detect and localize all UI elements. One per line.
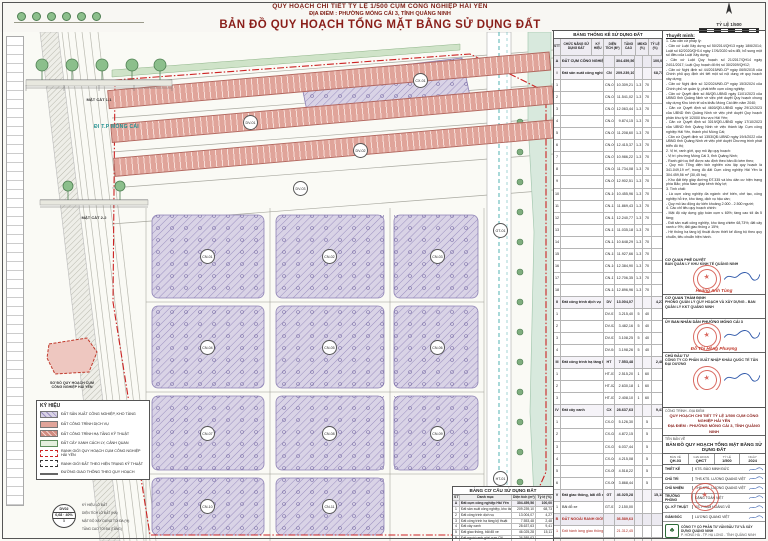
legend-item-label: ĐẤT CÔNG TRÌNH HẠ TẦNG KỸ THUẬT <box>61 432 129 436</box>
diagram-label-floors: TẦNG CAO TỐI ĐA (TẦNG) <box>82 527 122 531</box>
approval-block: CƠ QUAN PHÊ DUYỆT BAN QUẢN LÝ KHU KINH T… <box>663 257 765 295</box>
title-block: CÔNG TRÌNH - ĐỊA ĐIỂM QUY HOẠCH CHI TIẾT… <box>663 407 766 539</box>
table-row: 4 CX-04 4.215,08 5 <box>554 454 662 466</box>
legend-swatch <box>40 430 58 437</box>
drawing-sheet: QUY HOẠCH CHI TIẾT TỶ LỆ 1/500 CỤM CÔNG … <box>0 0 768 541</box>
note-line: - Căn cứ Quyết định số 3019/QĐ-UBND ngày… <box>666 120 762 134</box>
meta-value: 1/500 <box>715 459 740 463</box>
lot-code-circle: GT-01 <box>493 223 508 238</box>
table-row: 3 HT-03 2.408,10 1 60 <box>554 393 662 405</box>
lot-code-circle: CN-07 <box>200 426 215 441</box>
note-line: - Mật độ xây dựng gộp toàn cụm ≤ 60%; tầ… <box>666 211 762 221</box>
table-row: 2 CN-02 11.541,02 1-3 70 <box>554 92 662 104</box>
lot-code-circle: CN-01 <box>200 249 215 264</box>
meta-cell: BẢN VẼ QH-03 <box>663 454 689 464</box>
approval-blocks: CƠ QUAN PHÊ DUYỆT BAN QUẢN LÝ KHU KINH T… <box>663 257 766 407</box>
legend-item: ĐẤT CÂY XANH CÁCH LY, CẢNH QUAN <box>40 440 146 447</box>
personnel-list: THIẾT KẾ KTS. ĐÀO MINH ĐỨC CHỦ TRÌ THS.K… <box>663 465 765 523</box>
legend-swatch <box>40 460 58 467</box>
signature-icon <box>748 475 764 482</box>
table-row: 2 HT-02 2.630,18 1 60 <box>554 381 662 393</box>
approval-block: CHỦ ĐẦU TƯ CÔNG TY CỔ PHẦN XUẤT NHẬP KHẨ… <box>663 353 765 390</box>
table-row: 15 CN-15 11.927,66 1-3 70 <box>554 249 662 261</box>
location-inset: SƠ ĐỒ QUY HOẠCH CỤM CÔNG NGHIỆP HẢI YÊN <box>42 336 102 394</box>
project-location: ĐỊA ĐIỂM : PHƯỜNG MÓNG CÁI 3, TỈNH QUẢNG… <box>665 423 763 433</box>
meta-cell: NGÀY 2024 <box>740 454 765 464</box>
personnel-row: GIÁM ĐỐC LƯƠNG QUANG VIỆT <box>663 513 765 523</box>
note-line: - Hệ thống hạ tầng kỹ thuật được thiết k… <box>666 230 762 240</box>
table-row: V Đất giao thông, bãi đỗ xe GT 46.025,28… <box>554 490 662 502</box>
personnel-name: KTS. ĐÀO MINH ĐỨC <box>693 467 748 471</box>
project-section: CÔNG TRÌNH - ĐỊA ĐIỂM QUY HOẠCH CHI TIẾT… <box>663 408 765 436</box>
personnel-row: CHỦ TRÌ THS.KTS. LƯƠNG QUANG VIỆT <box>663 474 765 484</box>
lot-code-circle: CN-02 <box>322 249 337 264</box>
table-row: B ĐẤT NGOÀI RANH GIỚI CỤM CÔNG NGHIỆP 36… <box>554 514 662 526</box>
design-company: ♣ CÔNG TY CỔ PHẦN TƯ VẤN ĐẦU TƯ VÀ XÂY D… <box>663 522 765 539</box>
diagram-label-density: MẬT ĐỘ XÂY DỰNG TỐI ĐA (%) <box>82 519 129 523</box>
summary-table-title: BẢNG CƠ CẤU SỬ DỤNG ĐẤT <box>453 487 553 495</box>
legend-swatch <box>40 473 58 475</box>
lot-code-circle: CN-09 <box>430 426 445 441</box>
road-cross-section-2: MẶT CẮT 2-2 <box>38 168 150 220</box>
header-cell: KÝ HIỆU <box>592 39 604 55</box>
table-row: 7 CN-07 10.986,22 1-3 70 <box>554 152 662 164</box>
legend-title: KÝ HIỆU <box>40 403 146 409</box>
table-row: 6 CX-06 3.868,44 5 <box>554 478 662 490</box>
header-cell: TỶ LỆ (%) <box>649 39 662 55</box>
table-row: 1 CN-01 10.309,21 1-3 70 <box>554 80 662 92</box>
cross-section-2-drawing <box>38 168 150 210</box>
legend-swatch <box>40 450 58 457</box>
lot-code-circle: CN-04 <box>200 340 215 355</box>
legend-item: ĐẤT CÔNG TRÌNH DỊCH VỤ <box>40 421 146 428</box>
legend: KÝ HIỆU ĐẤT SẢN XUẤT CÔNG NGHIỆP, KHO TÀ… <box>36 400 150 480</box>
statistics-table-header: STTCHỨC NĂNG SỬ DỤNG ĐẤTKÝ HIỆUDIỆN TÍCH… <box>554 39 662 56</box>
title-line-2: ĐỊA ĐIỂM : PHƯỜNG MÓNG CÁI 3, TỈNH QUẢNG… <box>170 11 590 17</box>
table-row: 4 CN-04 9.874,15 1-3 70 <box>554 116 662 128</box>
note-line: - Căn cứ Nghị định số 32/2024/NĐ-CP ngày… <box>666 82 762 92</box>
north-arrow-block: TỶ LỆ 1/500 <box>694 2 764 33</box>
road-cross-section-1: MẶT CẮT 1-1 <box>24 40 174 102</box>
note-line: - Quy mô: Tổng diện tích nghiên cứu lập … <box>666 163 762 177</box>
meta-value: QHCT <box>689 459 714 463</box>
meta-value: QH-03 <box>663 459 688 463</box>
note-line: - Khu đất tiếp giáp đường ĐT.335 và khu … <box>666 178 762 188</box>
diagram-label-code: KÝ HIỆU LÔ ĐẤT <box>82 503 107 507</box>
lot-code-circle: CX-01 <box>413 73 428 88</box>
road-label: ĐI T.P MÓNG CÁI <box>94 124 139 130</box>
legend-item-label: ĐẤT CÔNG TRÌNH DỊCH VỤ <box>61 422 109 426</box>
drawing-name-label: TÊN BẢN VẼ <box>665 437 763 441</box>
section-1-caption: MẶT CẮT 1-1 <box>24 97 174 102</box>
legend-item: RANH GIỚI QUY HOẠCH CỤM CÔNG NGHIỆP HẢI … <box>40 449 146 457</box>
header-cell: TẦNG CAO <box>622 39 636 55</box>
table-row: 4 DV-04 3.198,26 5 40 <box>554 345 662 357</box>
lot-code-circle: CN-03 <box>430 249 445 264</box>
table-row: 2 DV-02 3.482,16 5 40 <box>554 321 662 333</box>
table-row: A ĐẤT CỤM CÔNG NGHIỆP HẢI YÊN 304.459,56… <box>554 56 662 68</box>
scale-label: TỶ LỆ 1/500 <box>694 22 764 27</box>
lot-code-circle: CN-11 <box>322 499 337 514</box>
signature-icon <box>723 270 761 284</box>
personnel-role: THIẾT KẾ <box>663 467 693 471</box>
title-line-1: QUY HOẠCH CHI TIẾT TỶ LỆ 1/500 CỤM CÔNG … <box>170 3 590 10</box>
header-cell: CHỨC NĂNG SỬ DỤNG ĐẤT <box>561 39 592 55</box>
approval-signature-area <box>665 324 763 346</box>
signature-icon <box>748 514 764 521</box>
note-line: - Đất sản xuất công nghiệp, kho tàng chi… <box>666 221 762 231</box>
meta-value: 2024 <box>740 459 765 463</box>
statistics-table-title: BẢNG THỐNG KÊ SỬ DỤNG ĐẤT <box>554 31 662 39</box>
diagram-label-area: DIỆN TÍCH LÔ ĐẤT (HA) <box>82 511 118 515</box>
statistics-table-rows: A ĐẤT CỤM CÔNG NGHIỆP HẢI YÊN 304.459,56… <box>554 56 662 541</box>
table-row: 1 CX-01 5.126,30 5 <box>554 417 662 429</box>
lot-code-circle: HT-01 <box>493 471 508 486</box>
table-row: 17 CN-17 12.706,35 1-3 70 <box>554 273 662 285</box>
land-use-statistics-table: BẢNG THỐNG KÊ SỬ DỤNG ĐẤT STTCHỨC NĂNG S… <box>553 31 663 539</box>
signature-icon <box>748 485 764 492</box>
table-row: 1 Đất hành lang giao thông ĐT.335 21.312… <box>554 526 662 538</box>
legend-item-label: RANH GIỚI ĐẤT THEO HIỆN TRẠNG KỸ THUẬT <box>61 462 143 466</box>
table-row: 3 DV-03 3.108,25 5 40 <box>554 333 662 345</box>
header-cell: DIỆN TÍCH (M²) <box>604 39 622 55</box>
personnel-name: THS.KTS. LƯƠNG QUANG VIỆT <box>693 477 748 481</box>
sheet-title: QUY HOẠCH CHI TIẾT TỶ LỆ 1/500 CỤM CÔNG … <box>170 3 590 31</box>
note-line: - Căn cứ Quyết định số 4600/QĐ-UBND ngày… <box>666 106 762 120</box>
signature-icon <box>723 328 761 342</box>
table-row: I Đất sản xuất công nghiệp, kho tàng CN … <box>554 68 662 80</box>
lot-code-circle: CN-10 <box>200 499 215 514</box>
header-cell: MĐXD (%) <box>636 39 649 55</box>
table-row: IV Đất cây xanh CX 28.637,63 9,41 <box>554 405 662 417</box>
red-seal-stamp <box>691 364 723 390</box>
notes-title: Thuyết minh: <box>666 33 762 38</box>
page-title: BẢN ĐỒ QUY HOẠCH TỔNG MẶT BẰNG SỬ DỤNG Đ… <box>170 19 590 31</box>
legend-swatch <box>40 411 58 418</box>
personnel-row: THIẾT KẾ KTS. ĐÀO MINH ĐỨC <box>663 465 765 475</box>
notes-lines: 1. Các căn cứ pháp lý:- Căn cứ Luật Xây … <box>666 39 762 240</box>
legend-item-label: ĐƯỜNG GIAO THÔNG THEO QUY HOẠCH <box>61 470 135 474</box>
summary-table-rows: A Đất cụm công nghiệp Hải Yên 304.459,56… <box>453 501 553 541</box>
signature-icon <box>748 504 764 511</box>
legend-item: ĐẤT SẢN XUẤT CÔNG NGHIỆP, KHO TÀNG <box>40 411 146 418</box>
table-row: II Đất công trình dịch vụ DV 13.004,07 4… <box>554 297 662 309</box>
table-row: 16 CN-16 12.384,90 1-3 70 <box>554 261 662 273</box>
note-line: - Căn cứ Luật Quy hoạch số 21/2017/QH14 … <box>666 58 762 68</box>
personnel-role: QL. KỸ THUẬT <box>663 505 693 509</box>
lot-code-circle: DV-01 <box>243 115 258 130</box>
example-lot-floors: 5 <box>63 519 65 523</box>
lot-code-circle: DV-03 <box>293 181 308 196</box>
inset-caption-line-2: CÔNG NGHIỆP HẢI YÊN <box>42 385 102 389</box>
drawing-name: BẢN ĐỒ QUY HOẠCH TỔNG MẶT BẰNG SỬ DỤNG Đ… <box>665 442 763 452</box>
table-row: III Đất công trình hạ tầng kỹ thuật HT 7… <box>554 357 662 369</box>
personnel-role: TRƯỞNG PHÒNG <box>663 494 693 502</box>
table-row: 10 CN-10 10.455,96 1-3 70 <box>554 189 662 201</box>
lot-annotation-diagram: DV02 0,68 · 40% 5 KÝ HIỆU LÔ ĐẤT DIỆN TÍ… <box>44 502 154 536</box>
signature-icon <box>748 466 764 473</box>
meta-cell: TỶ LỆ 1/500 <box>715 454 741 464</box>
table-row: 3 CX-03 6.037,44 5 <box>554 442 662 454</box>
company-name: CÔNG TY CỔ PHẦN TƯ VẤN ĐẦU TƯ VÀ XÂY DỰN… <box>681 525 763 533</box>
land-use-summary-table: BẢNG CƠ CẤU SỬ DỤNG ĐẤT STT Danh mục Diệ… <box>452 486 554 541</box>
north-arrow-icon <box>721 2 737 16</box>
approval-organization: CÔNG TY CỔ PHẦN XUẤT NHẬP KHẨU QUỐC TẾ T… <box>665 358 763 367</box>
company-address: P. HỒNG HÀ - TP. HẠ LONG - TỈNH QUẢNG NI… <box>681 533 763 537</box>
table-row: 11 CN-11 11.869,43 1-3 70 <box>554 201 662 213</box>
personnel-role: CHỦ TRÌ <box>663 477 693 481</box>
table-row: 13 CN-13 11.035,18 1-3 70 <box>554 225 662 237</box>
note-line: - Căn cứ Quyết định số 86/QĐ-UBND ngày 1… <box>666 92 762 106</box>
legend-swatch <box>40 421 58 428</box>
lot-code-circle: CN-08 <box>322 426 337 441</box>
legend-items: ĐẤT SẢN XUẤT CÔNG NGHIỆP, KHO TÀNG ĐẤT C… <box>40 411 146 475</box>
table-row: 1 HT-01 2.515,20 1 60 <box>554 369 662 381</box>
approval-signature-area <box>665 266 763 288</box>
note-line: - Là cụm công nghiệp đa ngành: chế biến,… <box>666 192 762 202</box>
table-row: 6 CN-06 12.415,37 1-3 70 <box>554 140 662 152</box>
table-row: 2 CX-02 4.872,15 5 <box>554 429 662 441</box>
signature-icon <box>723 371 761 385</box>
approval-organization: PHÒNG QUẢN LÝ QUY HOẠCH VÀ XÂY DỰNG - BA… <box>665 300 763 309</box>
legend-item-label: ĐẤT SẢN XUẤT CÔNG NGHIỆP, KHO TÀNG <box>61 412 136 416</box>
inset-map-drawing <box>43 336 101 376</box>
signature-icon <box>748 494 764 501</box>
approval-signature-area <box>665 309 763 317</box>
approval-block: ỦY BAN NHÂN DÂN PHƯỜNG MÓNG CÁI 3 Đỗ Thị… <box>663 319 765 353</box>
table-row: 14 CN-14 10.648,29 1-3 70 <box>554 237 662 249</box>
company-logo-icon: ♣ <box>665 524 679 538</box>
table-row: 1 DV-01 3.215,40 5 40 <box>554 309 662 321</box>
approval-signature-area <box>665 367 763 389</box>
chainage-strip <box>6 36 24 506</box>
personnel-role: GIÁM ĐỐC <box>663 515 693 519</box>
project-name: QUY HOẠCH CHI TIẾT TỶ LỆ 1/500 CỤM CÔNG … <box>665 413 763 423</box>
note-line: - Căn cứ Quyết định số 1353/QĐ-UBND ngày… <box>666 135 762 149</box>
example-lot-circle: DV02 0,68 · 40% 5 <box>52 504 76 528</box>
table-row: 18 CN-18 12.896,96 1-3 70 <box>554 285 662 297</box>
top-tree-strip <box>14 8 144 23</box>
legend-swatch <box>40 440 58 447</box>
meta-cell: GIAI ĐOẠN QHCT <box>689 454 715 464</box>
legend-item-label: RANH GIỚI QUY HOẠCH CỤM CÔNG NGHIỆP HẢI … <box>61 449 146 457</box>
table-row: 1 Bãi đỗ xe GT-01 2.150,00 <box>554 502 662 514</box>
drawing-name-section: TÊN BẢN VẼ BẢN ĐỒ QUY HOẠCH TỔNG MẶT BẰN… <box>663 436 765 454</box>
section-2-caption: MẶT CẮT 2-2 <box>38 215 150 220</box>
personnel-role: CHỦ NHIỆM <box>663 486 693 490</box>
legend-item: RANH GIỚI ĐẤT THEO HIỆN TRẠNG KỸ THUẬT <box>40 460 146 467</box>
legend-item: ĐƯỜNG GIAO THÔNG THEO QUY HOẠCH <box>40 470 146 475</box>
table-row: B Đất ngoài ranh giới cụm CN 36.589,63 <box>453 536 553 541</box>
cross-section-1-drawing <box>24 40 174 92</box>
legend-item: ĐẤT CÔNG TRÌNH HẠ TẦNG KỸ THUẬT <box>40 430 146 437</box>
table-row: 12 CN-12 12.240,77 1-3 70 <box>554 213 662 225</box>
personnel-name: LƯƠNG QUANG VIỆT <box>693 515 748 519</box>
table-row: 8 CN-08 11.734,08 1-3 70 <box>554 164 662 176</box>
table-row: 5 CX-05 4.518,22 5 <box>554 466 662 478</box>
table-row: 3 CN-03 12.063,44 1-3 70 <box>554 104 662 116</box>
drawing-meta-row: BẢN VẼ QH-03 GIAI ĐOẠN QHCT TỶ LỆ 1/500 … <box>663 454 765 465</box>
explanatory-notes: Thuyết minh: 1. Các căn cứ pháp lý:- Căn… <box>663 31 766 257</box>
table-row: 9 CN-09 12.902,51 1-3 70 <box>554 176 662 188</box>
note-line: - Căn cứ Luật Xây dựng số 50/2014/QH13 n… <box>666 44 762 58</box>
header-cell: STT <box>554 39 561 55</box>
lot-code-circle: CN-06 <box>430 340 445 355</box>
note-line: - Căn cứ Nghị định số 44/2015/NĐ-CP ngày… <box>666 68 762 82</box>
legend-item-label: ĐẤT CÂY XANH CÁCH LY, CẢNH QUAN <box>61 441 129 445</box>
lot-code-circle: DV-02 <box>353 143 368 158</box>
table-row: 5 CN-05 11.208,60 1-3 70 <box>554 128 662 140</box>
lot-code-circle: CN-05 <box>322 340 337 355</box>
right-column-top-rule <box>552 30 766 31</box>
approval-block: CƠ QUAN THẨM ĐỊNH PHÒNG QUẢN LÝ QUY HOẠC… <box>663 295 765 319</box>
